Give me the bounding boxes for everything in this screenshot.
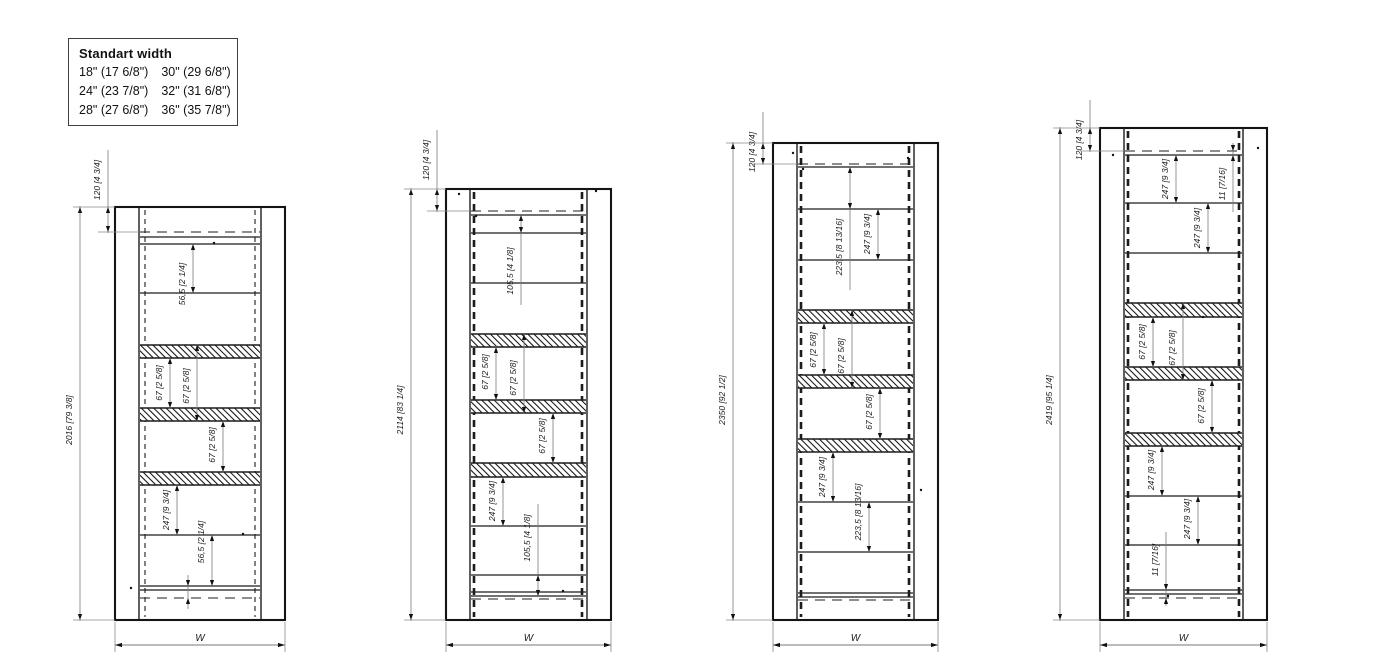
dimension-label: 247 [9 3/4] — [161, 489, 171, 531]
dimension-label: 67 [2 5/8] — [1167, 330, 1177, 366]
dimension-label: 67 [2 5/8] — [480, 354, 490, 390]
legend-title: Standart width — [79, 46, 227, 61]
dimension-label: 11 [7/16] — [1150, 543, 1160, 576]
width-option: 36" (35 7/8") — [161, 103, 230, 117]
dimension-label: 247 [9 3/4] — [487, 480, 497, 522]
dimension-label: 105,5 [4 1/8] — [522, 514, 532, 562]
dimension-label: 67 [2 5/8] — [836, 338, 846, 374]
width-option: 24" (23 7/8") — [79, 84, 148, 98]
width-dimension-label: W — [524, 633, 535, 644]
width-option: 32" (31 6/8") — [161, 84, 230, 98]
width-option: 28" (27 6/8") — [79, 103, 148, 117]
dimension-label: 67 [2 5/8] — [1196, 388, 1206, 424]
dimension-label: 2419 [95 1/4] — [1044, 375, 1054, 426]
cabinet-elevation-2350: 120 [4 3/4]2350 [92 1/2]223,5 [8 13/16]2… — [717, 112, 938, 652]
dimension-label: 2114 [83 1/4] — [395, 385, 405, 436]
dimension-label: 67 [2 5/8] — [537, 418, 547, 454]
dimension-label: 247 [9 3/4] — [1182, 498, 1192, 540]
cabinet-elevation-2419: 120 [4 3/4]2419 [95 1/4]247 [9 3/4]11 [7… — [1044, 100, 1267, 652]
dimension-label: 67 [2 5/8] — [864, 394, 874, 430]
dimension-label: 67 [2 5/8] — [154, 365, 164, 401]
cabinet-elevation-2114: 120 [4 3/4]2114 [83 1/4]105,5 [4 1/8]67 … — [395, 130, 611, 652]
dimension-label: 120 [4 3/4] — [1074, 119, 1084, 160]
width-dimension-label: W — [1179, 633, 1190, 644]
dimension-label: 2350 [92 1/2] — [717, 375, 727, 426]
dimension-label: 67 [2 5/8] — [808, 332, 818, 368]
dimension-label: 11 [7/16] — [1217, 167, 1227, 200]
dimension-label: 56,5 [2 1/4] — [196, 520, 206, 563]
dimension-label: 2016 [79 3/8] — [64, 395, 74, 446]
dimension-label: 67 [2 5/8] — [207, 427, 217, 463]
dimension-label: 67 [2 5/8] — [1137, 324, 1147, 360]
cabinet-elevation-2016: 120 [4 3/4]2016 [79 3/8]56,5 [2 1/4]67 [… — [64, 150, 285, 652]
dimension-label: 247 [9 3/4] — [1160, 158, 1170, 200]
dimension-label: 223,5 [8 13/16] — [853, 483, 863, 541]
dimension-label: 120 [4 3/4] — [421, 139, 431, 180]
width-option: 30" (29 6/8") — [161, 65, 230, 79]
legend-grid: 18" (17 6/8") 24" (23 7/8") 28" (27 6/8"… — [79, 65, 227, 117]
dimension-label: 247 [9 3/4] — [862, 213, 872, 255]
dimension-label: 247 [9 3/4] — [1192, 207, 1202, 249]
width-dimension-label: W — [851, 633, 862, 644]
technical-drawing-page: 120 [4 3/4]2016 [79 3/8]56,5 [2 1/4]67 [… — [0, 0, 1400, 670]
dimension-label: 223,5 [8 13/16] — [834, 218, 844, 276]
dimension-label: 105,5 [4 1/8] — [505, 247, 515, 295]
dimension-label: 120 [4 3/4] — [747, 131, 757, 172]
dimension-label: 67 [2 5/8] — [181, 368, 191, 404]
width-option: 18" (17 6/8") — [79, 65, 148, 79]
dimension-label: 67 [2 5/8] — [508, 360, 518, 396]
dimension-label: 247 [9 3/4] — [1146, 449, 1156, 491]
standard-width-legend: Standart width 18" (17 6/8") 24" (23 7/8… — [68, 38, 238, 126]
dimension-label: 120 [4 3/4] — [92, 159, 102, 200]
dimension-label: 247 [9 3/4] — [817, 456, 827, 498]
width-dimension-label: W — [195, 633, 206, 644]
dimension-label: 56,5 [2 1/4] — [177, 262, 187, 305]
